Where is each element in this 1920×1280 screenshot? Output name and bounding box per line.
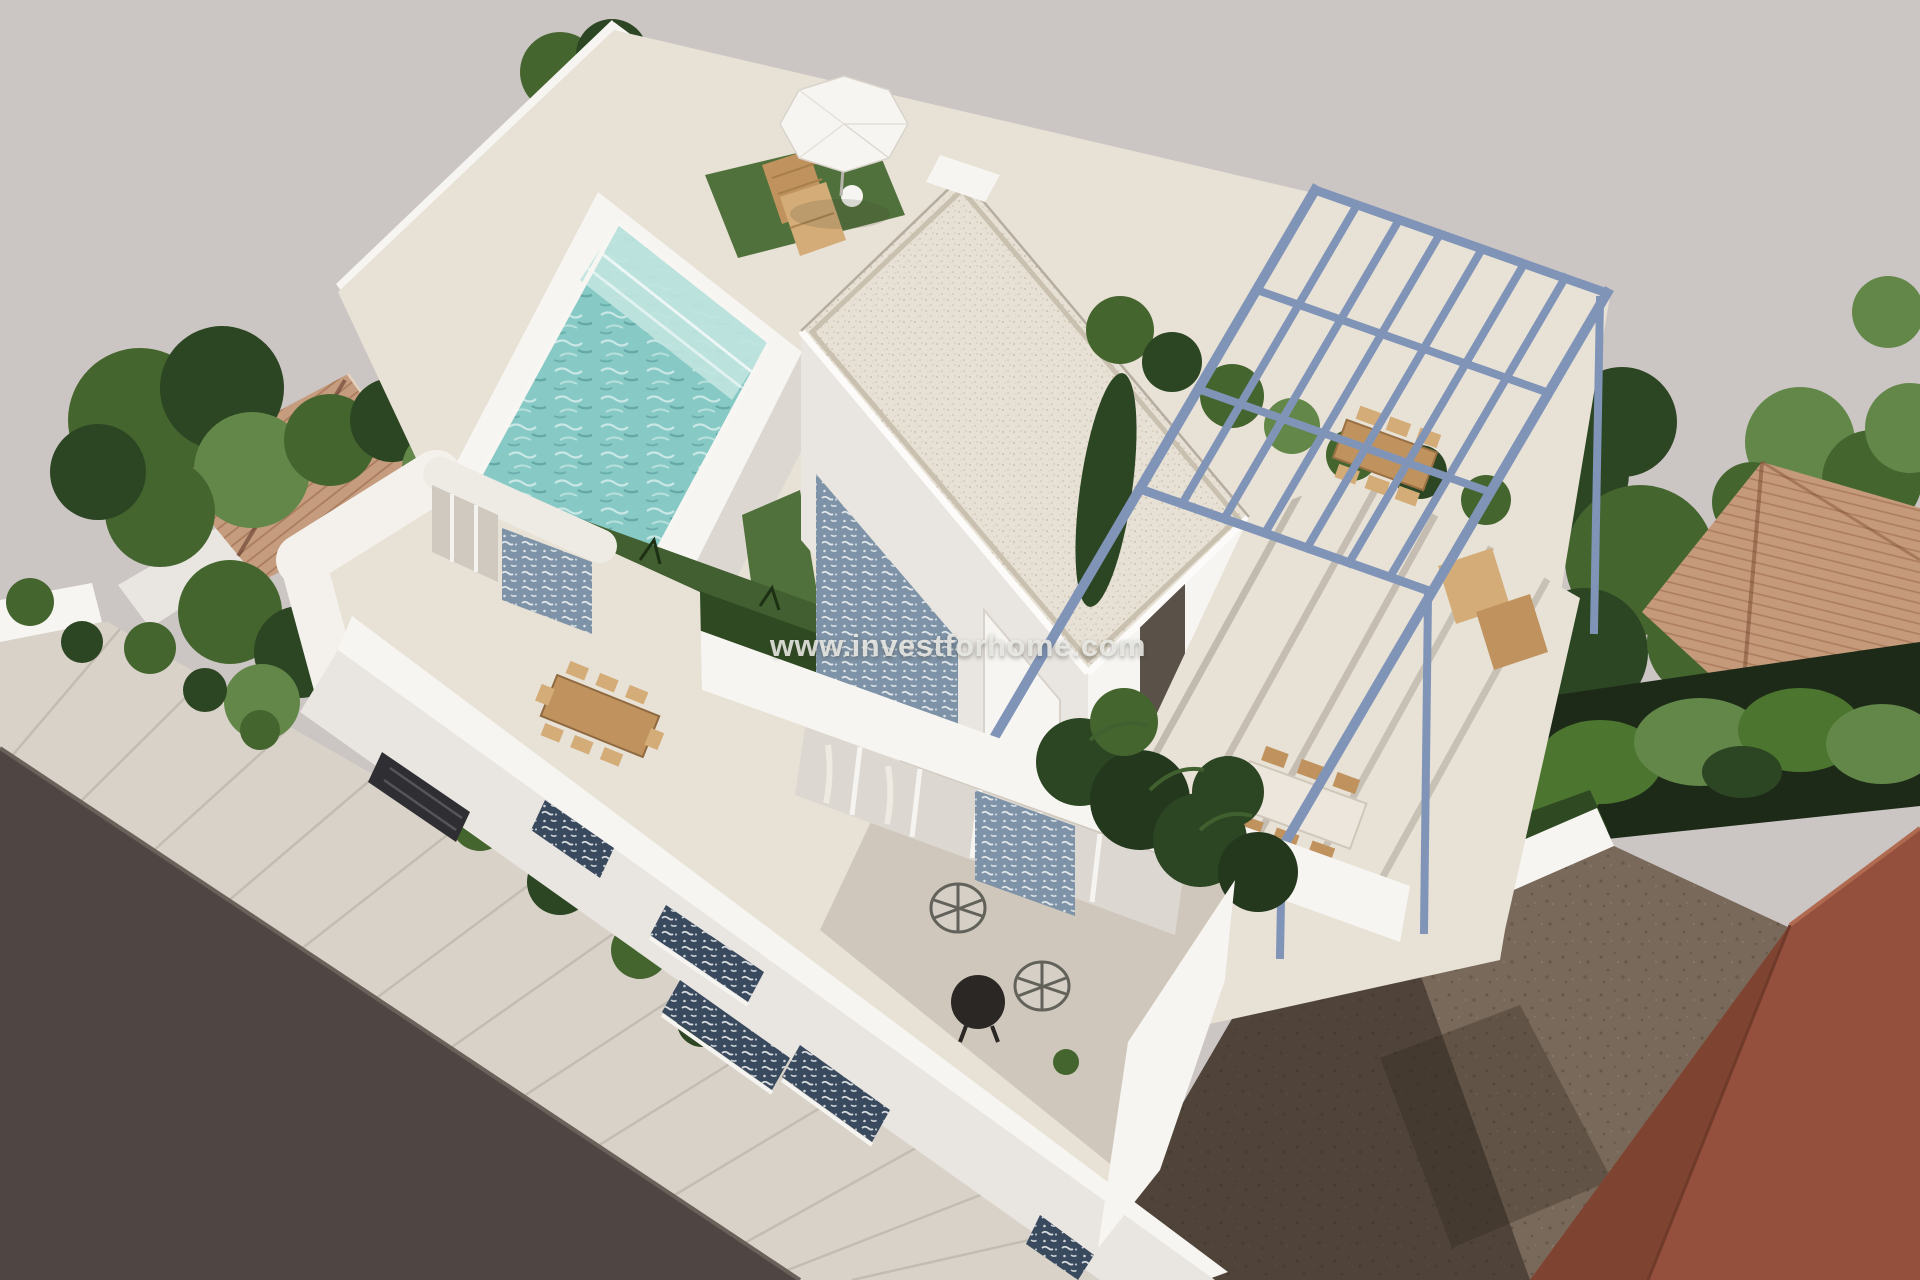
scene-render: www.investforhome.com xyxy=(0,0,1920,1280)
watermark-text: www.investforhome.com xyxy=(770,628,1146,664)
round-black-table xyxy=(951,975,1005,1029)
